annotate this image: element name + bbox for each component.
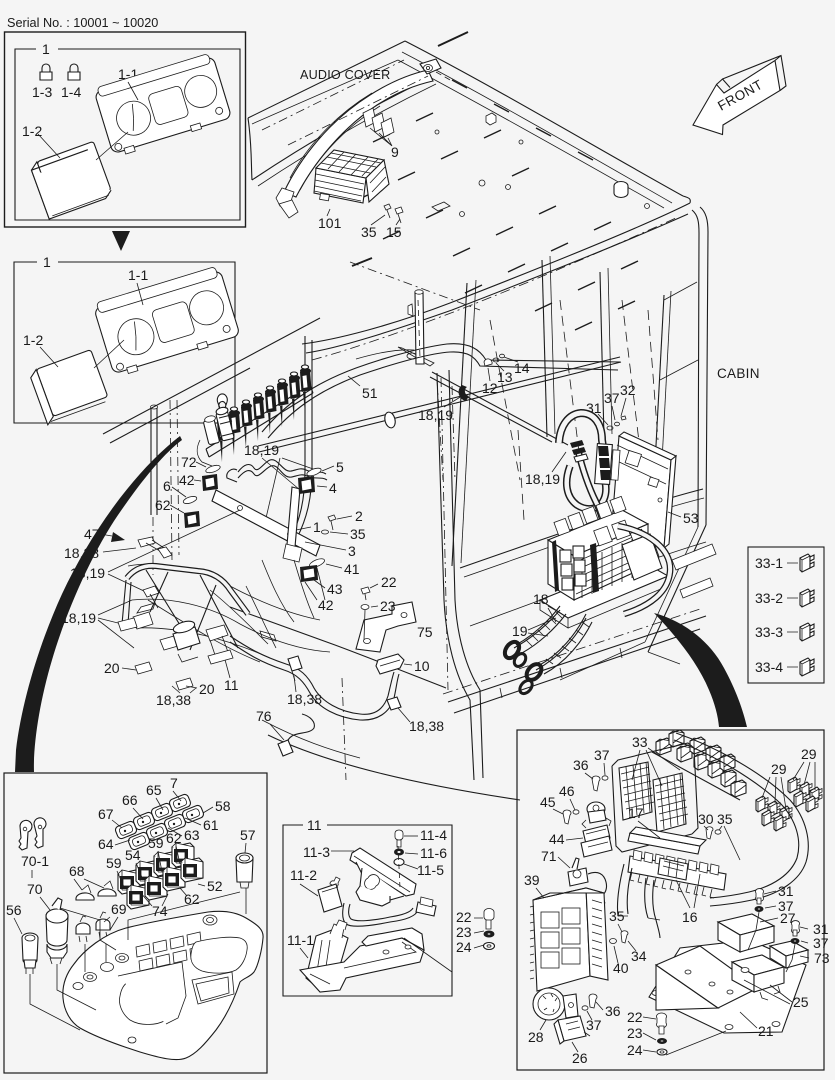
svg-text:16: 16 — [682, 909, 698, 925]
svg-text:57: 57 — [240, 827, 256, 843]
svg-text:71: 71 — [541, 848, 557, 864]
svg-text:7: 7 — [170, 775, 178, 791]
svg-text:18,19: 18,19 — [525, 471, 560, 487]
svg-text:37: 37 — [813, 935, 829, 951]
svg-text:23: 23 — [456, 924, 472, 940]
svg-text:64: 64 — [98, 836, 114, 852]
svg-text:11-3: 11-3 — [303, 844, 330, 860]
svg-text:23: 23 — [380, 598, 396, 614]
svg-text:25: 25 — [793, 994, 809, 1010]
svg-text:68: 68 — [69, 863, 85, 879]
svg-text:36: 36 — [573, 757, 589, 773]
svg-text:1-2: 1-2 — [23, 332, 43, 348]
svg-text:1: 1 — [43, 254, 51, 270]
svg-text:1-4: 1-4 — [61, 84, 81, 100]
svg-text:51: 51 — [362, 385, 378, 401]
svg-text:58: 58 — [215, 798, 231, 814]
svg-text:73: 73 — [814, 950, 830, 966]
svg-text:67: 67 — [98, 806, 114, 822]
svg-text:11-5: 11-5 — [417, 862, 444, 878]
svg-text:37: 37 — [604, 390, 620, 406]
svg-text:32: 32 — [620, 382, 636, 398]
svg-text:1: 1 — [313, 519, 321, 535]
svg-text:62: 62 — [155, 497, 171, 513]
svg-text:52: 52 — [207, 878, 223, 894]
svg-text:CABIN: CABIN — [717, 366, 760, 381]
svg-text:3: 3 — [348, 543, 356, 559]
svg-text:9: 9 — [391, 144, 399, 160]
svg-text:18,38: 18,38 — [409, 718, 444, 734]
svg-text:62: 62 — [184, 891, 200, 907]
svg-text:37: 37 — [586, 1017, 602, 1033]
svg-text:1: 1 — [42, 41, 50, 57]
svg-text:43: 43 — [327, 581, 343, 597]
svg-text:72: 72 — [181, 454, 197, 470]
svg-text:33: 33 — [632, 734, 648, 750]
svg-text:20: 20 — [199, 681, 215, 697]
svg-text:45: 45 — [540, 794, 556, 810]
svg-text:33-4: 33-4 — [755, 659, 783, 675]
svg-text:1-2: 1-2 — [22, 123, 42, 139]
svg-text:24: 24 — [627, 1042, 643, 1058]
svg-text:33-3: 33-3 — [755, 624, 783, 640]
svg-text:56: 56 — [6, 902, 22, 918]
svg-text:33-1: 33-1 — [755, 555, 783, 571]
svg-text:26: 26 — [572, 1050, 588, 1066]
svg-text:13: 13 — [497, 369, 513, 385]
svg-text:12: 12 — [482, 380, 498, 396]
svg-text:70-1: 70-1 — [21, 853, 49, 869]
svg-text:33-2: 33-2 — [755, 590, 783, 606]
svg-text:42: 42 — [179, 472, 195, 488]
svg-text:46: 46 — [559, 783, 575, 799]
svg-text:37: 37 — [778, 898, 794, 914]
svg-text:18,19: 18,19 — [418, 407, 453, 423]
svg-text:18,38: 18,38 — [156, 692, 191, 708]
svg-text:44: 44 — [549, 831, 565, 847]
svg-text:20: 20 — [104, 660, 120, 676]
svg-text:6: 6 — [163, 478, 171, 494]
svg-text:22: 22 — [627, 1009, 643, 1025]
svg-text:31: 31 — [778, 883, 794, 899]
svg-text:22: 22 — [381, 574, 397, 590]
svg-text:14: 14 — [514, 360, 530, 376]
svg-text:39: 39 — [524, 872, 540, 888]
svg-text:34: 34 — [631, 948, 647, 964]
svg-text:29: 29 — [771, 761, 787, 777]
svg-text:62: 62 — [166, 830, 182, 846]
svg-text:11-2: 11-2 — [290, 867, 317, 883]
svg-text:29: 29 — [801, 746, 817, 762]
svg-text:54: 54 — [125, 847, 141, 863]
svg-text:59: 59 — [106, 855, 122, 871]
svg-text:63: 63 — [184, 827, 200, 843]
svg-text:40: 40 — [613, 960, 629, 976]
svg-text:19: 19 — [512, 623, 528, 639]
svg-text:11-1: 11-1 — [287, 932, 314, 948]
svg-text:66: 66 — [122, 792, 138, 808]
svg-text:69: 69 — [111, 901, 127, 917]
svg-text:10: 10 — [414, 658, 430, 674]
svg-text:65: 65 — [146, 782, 162, 798]
svg-text:61: 61 — [203, 817, 219, 833]
svg-text:24: 24 — [456, 939, 472, 955]
svg-text:2: 2 — [355, 508, 363, 524]
svg-text:30: 30 — [698, 811, 714, 827]
svg-text:18: 18 — [533, 591, 549, 607]
svg-text:76: 76 — [256, 708, 272, 724]
svg-text:4: 4 — [329, 480, 337, 496]
svg-text:17: 17 — [628, 805, 644, 821]
svg-text:18,38: 18,38 — [287, 691, 322, 707]
svg-text:75: 75 — [417, 624, 433, 640]
svg-text:35: 35 — [350, 526, 366, 542]
svg-text:1-3: 1-3 — [32, 84, 52, 100]
svg-text:36: 36 — [605, 1003, 621, 1019]
svg-text:53: 53 — [683, 510, 699, 526]
svg-text:1-1: 1-1 — [128, 267, 148, 283]
svg-text:37: 37 — [594, 747, 610, 763]
svg-text:101: 101 — [318, 215, 342, 231]
svg-text:70: 70 — [27, 881, 43, 897]
svg-text:18,19: 18,19 — [244, 442, 279, 458]
svg-text:15: 15 — [386, 224, 402, 240]
svg-text:35: 35 — [609, 908, 625, 924]
svg-text:11-4: 11-4 — [420, 827, 447, 843]
svg-text:11: 11 — [307, 817, 322, 833]
svg-text:59: 59 — [148, 835, 164, 851]
svg-text:28: 28 — [528, 1029, 544, 1045]
svg-text:42: 42 — [318, 597, 334, 613]
svg-text:35: 35 — [361, 224, 377, 240]
svg-text:11: 11 — [224, 677, 239, 693]
svg-text:22: 22 — [456, 909, 472, 925]
svg-text:21: 21 — [758, 1023, 774, 1039]
svg-text:41: 41 — [344, 561, 360, 577]
svg-text:11-6: 11-6 — [420, 845, 447, 861]
svg-text:35: 35 — [717, 811, 733, 827]
svg-text:5: 5 — [336, 459, 344, 475]
svg-text:23: 23 — [627, 1025, 643, 1041]
svg-text:Serial No. : 10001 ~ 10020: Serial No. : 10001 ~ 10020 — [7, 16, 158, 30]
